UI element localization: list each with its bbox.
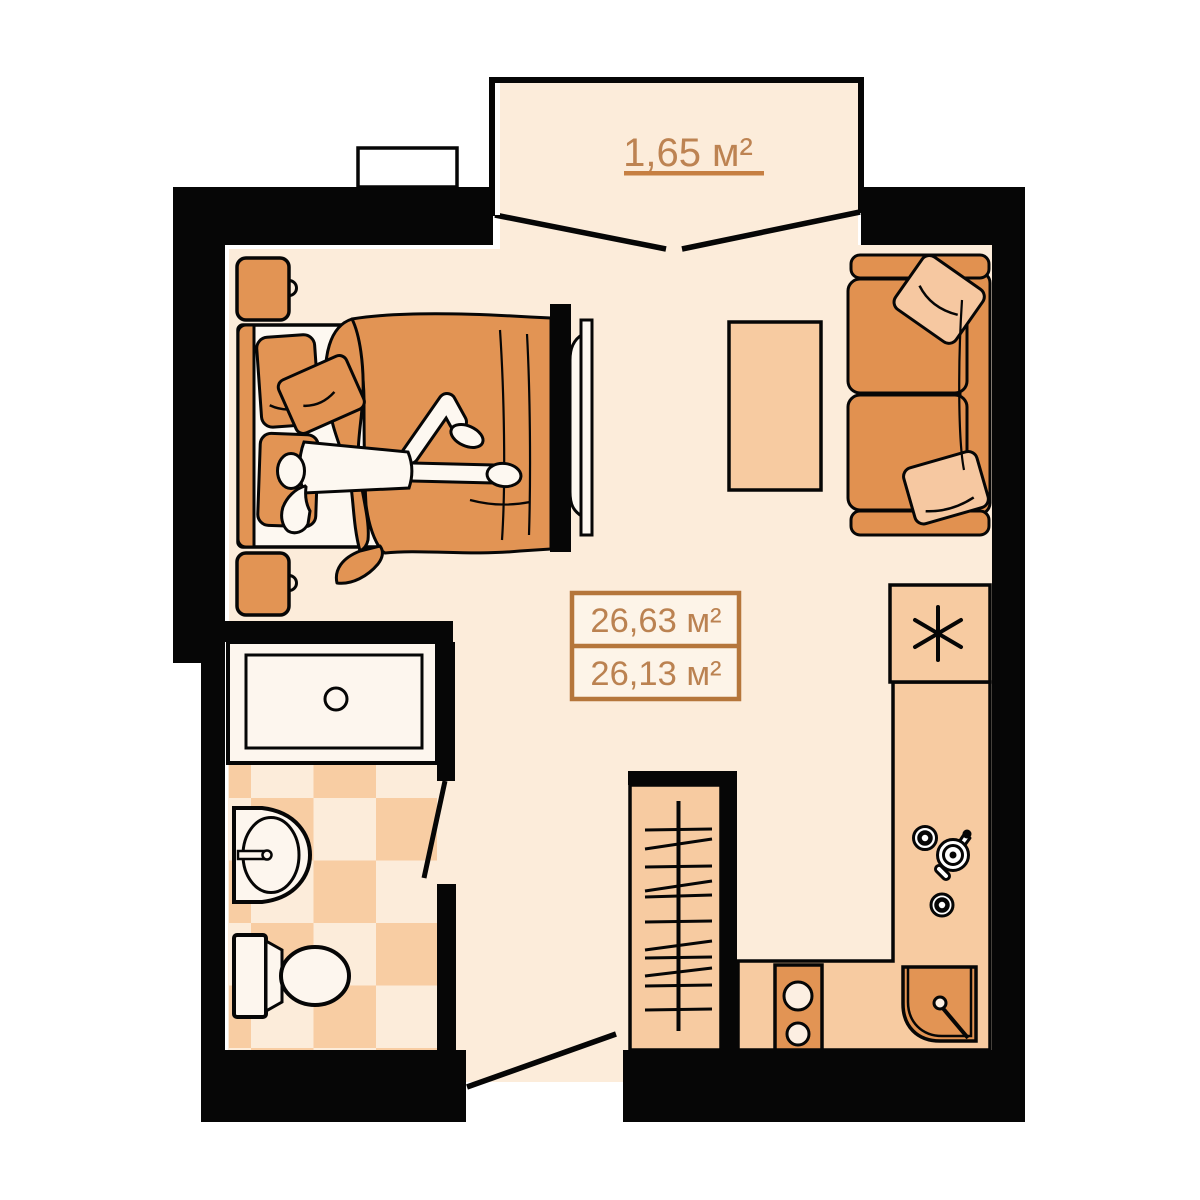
svg-text:26,63 м²: 26,63 м² [590, 602, 721, 640]
svg-text:26,13 м²: 26,13 м² [590, 655, 721, 693]
svg-text:1,65 м²: 1,65 м² [623, 131, 753, 175]
